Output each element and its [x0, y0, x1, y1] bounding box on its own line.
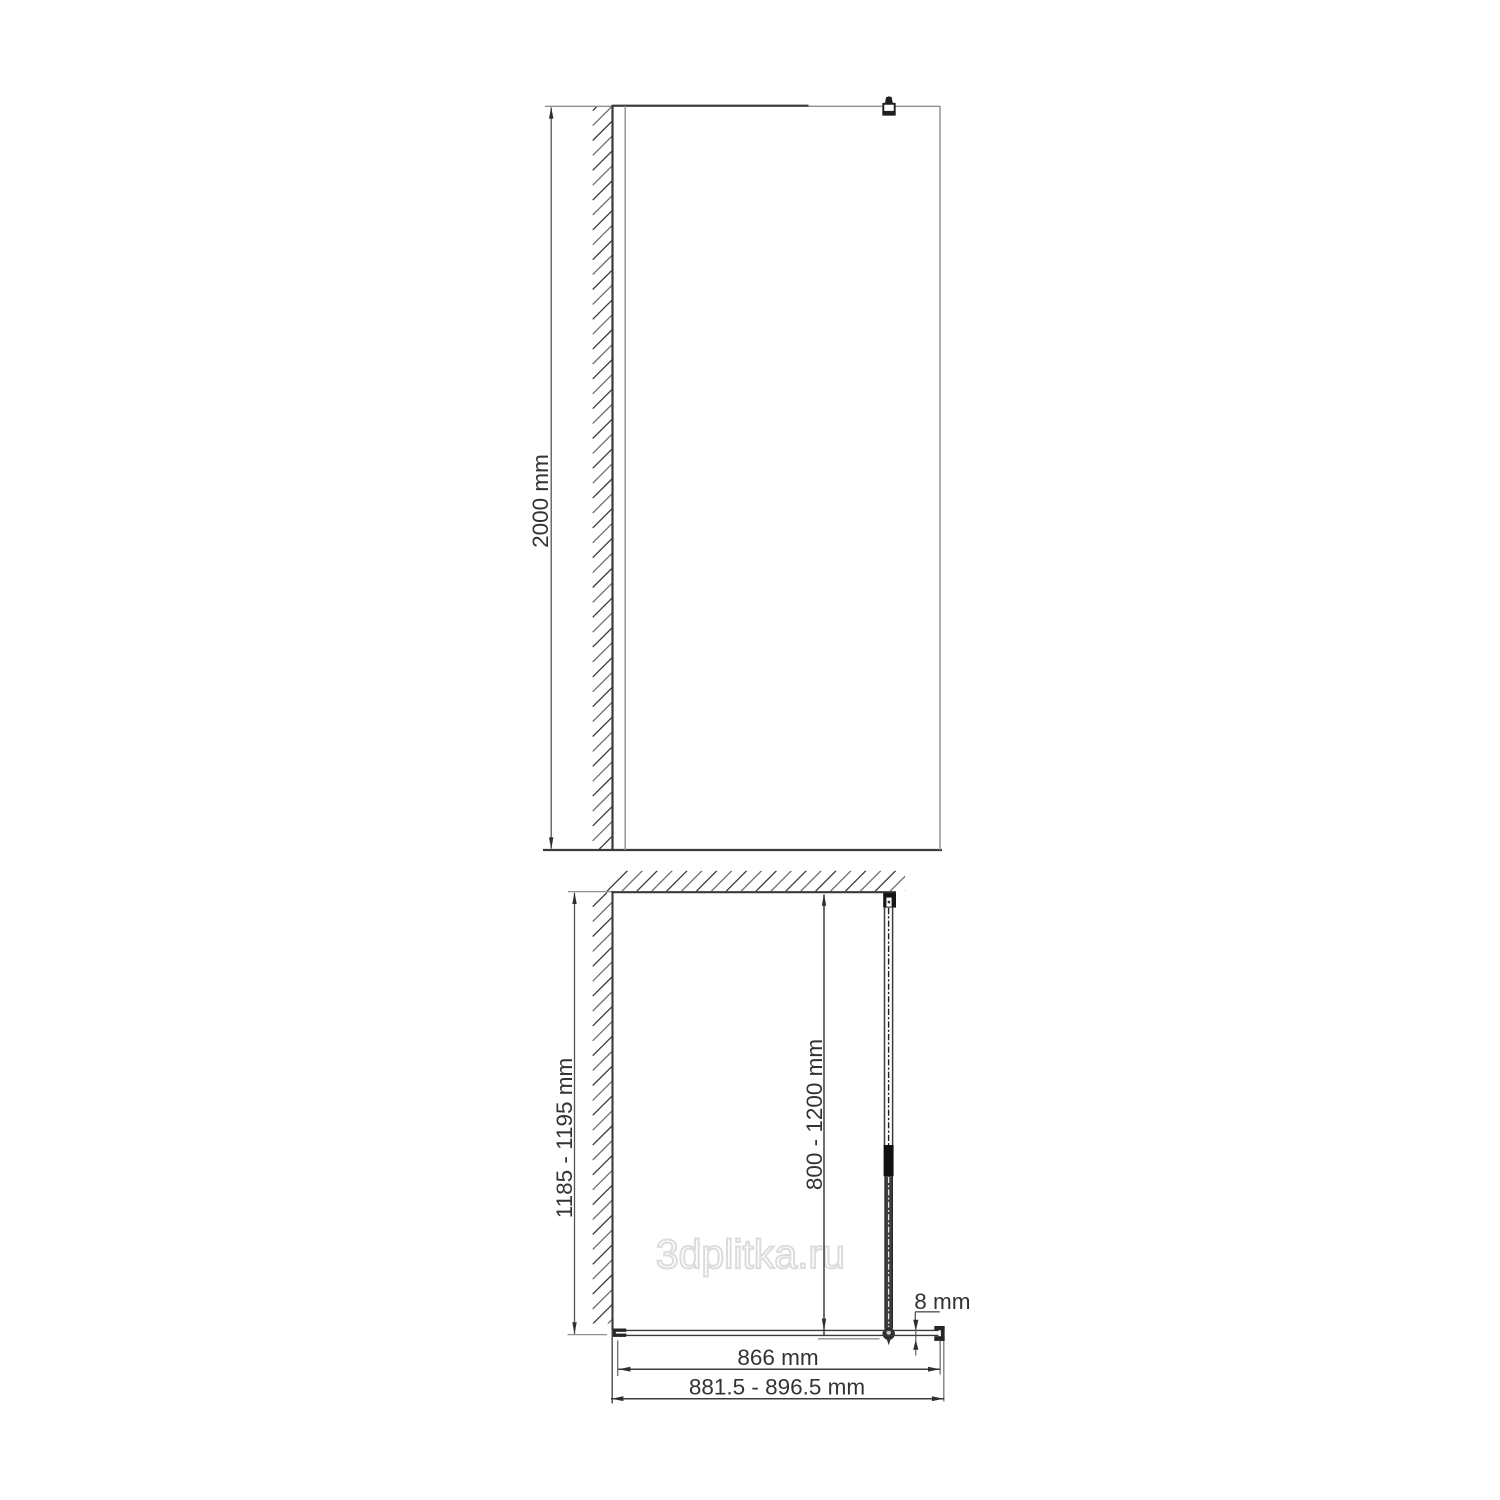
svg-text:866 mm: 866 mm: [737, 1345, 818, 1370]
svg-text:8 mm: 8 mm: [914, 1289, 970, 1314]
svg-text:881.5 - 896.5 mm: 881.5 - 896.5 mm: [689, 1374, 865, 1399]
svg-text:2000 mm: 2000 mm: [528, 454, 553, 548]
svg-text:1185 - 1195 mm: 1185 - 1195 mm: [552, 1058, 577, 1219]
svg-text:800 - 1200 mm: 800 - 1200 mm: [802, 1039, 827, 1190]
svg-text:3dplitka.ru: 3dplitka.ru: [656, 1231, 845, 1277]
